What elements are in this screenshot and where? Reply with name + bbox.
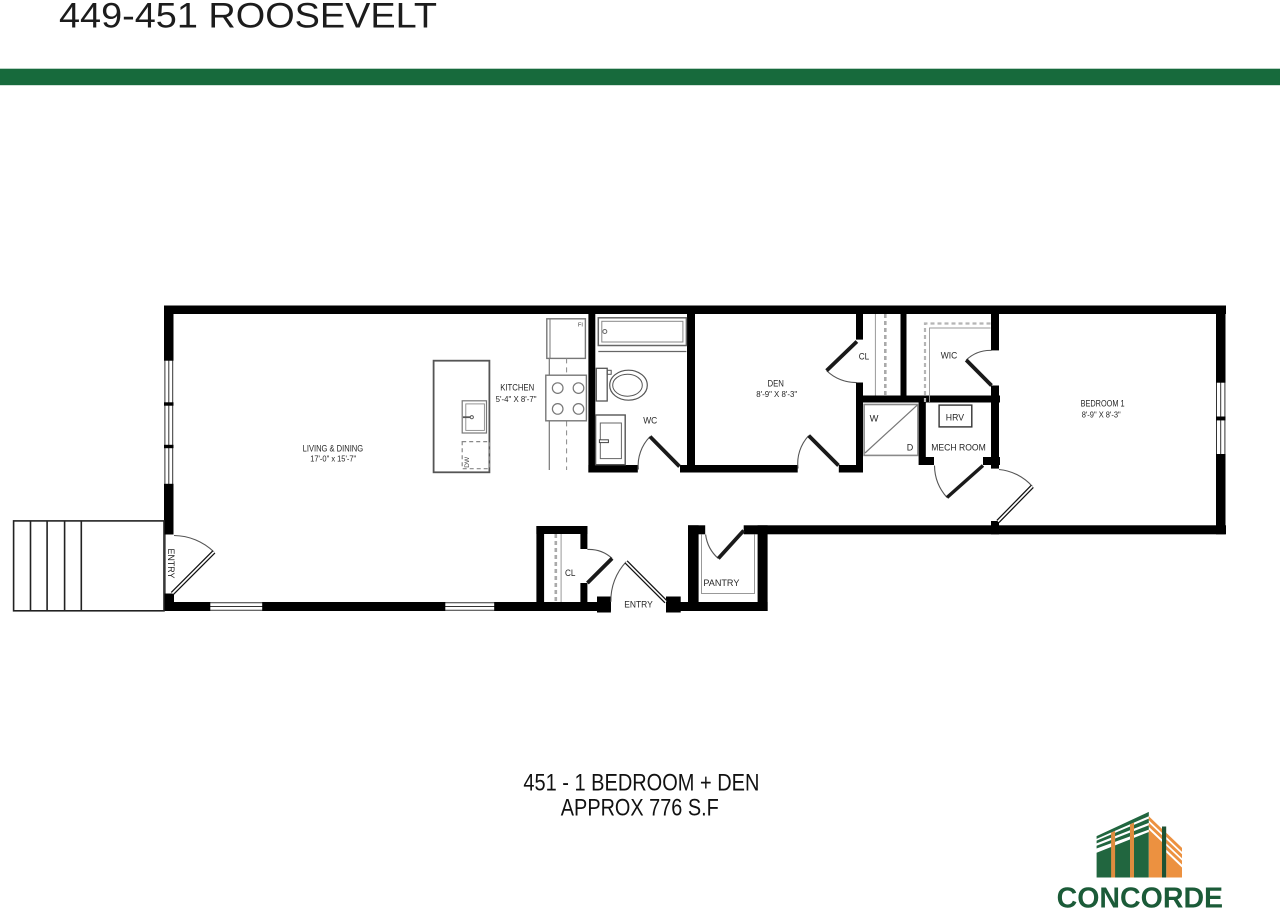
svg-text:17'-0" x 15'-7": 17'-0" x 15'-7" bbox=[310, 454, 356, 464]
svg-text:DW: DW bbox=[464, 456, 471, 468]
svg-text:W: W bbox=[870, 414, 879, 424]
svg-text:WIC: WIC bbox=[941, 350, 958, 360]
svg-text:5'-4" X 8'-7": 5'-4" X 8'-7" bbox=[496, 394, 537, 404]
svg-text:KITCHEN: KITCHEN bbox=[500, 383, 534, 393]
svg-text:449-451 ROOSEVELT: 449-451 ROOSEVELT bbox=[59, 0, 437, 36]
svg-text:ENTRY: ENTRY bbox=[624, 599, 653, 609]
svg-text:WC: WC bbox=[643, 415, 657, 425]
svg-text:8'-9" X 8'-3": 8'-9" X 8'-3" bbox=[756, 389, 797, 399]
svg-text:ENTRY: ENTRY bbox=[166, 549, 176, 579]
svg-text:D: D bbox=[907, 443, 914, 453]
svg-text:MECH ROOM: MECH ROOM bbox=[931, 443, 986, 453]
svg-text:FI: FI bbox=[578, 323, 583, 329]
svg-text:8'-9" X 8'-3": 8'-9" X 8'-3" bbox=[1082, 410, 1121, 420]
svg-text:HRV: HRV bbox=[946, 413, 964, 423]
svg-text:CL: CL bbox=[565, 568, 576, 578]
svg-text:LIVING & DINING: LIVING & DINING bbox=[303, 443, 364, 453]
svg-text:CL: CL bbox=[859, 351, 870, 361]
svg-text:PANTRY: PANTRY bbox=[703, 578, 739, 588]
svg-text:BEDROOM 1: BEDROOM 1 bbox=[1081, 399, 1125, 409]
svg-text:451 - 1 BEDROOM + DEN: 451 - 1 BEDROOM + DEN bbox=[523, 770, 759, 797]
svg-text:APPROX 776 S.F: APPROX 776 S.F bbox=[561, 795, 719, 822]
svg-text:DEN: DEN bbox=[767, 379, 784, 389]
svg-text:CONCORDE: CONCORDE bbox=[1057, 882, 1224, 909]
